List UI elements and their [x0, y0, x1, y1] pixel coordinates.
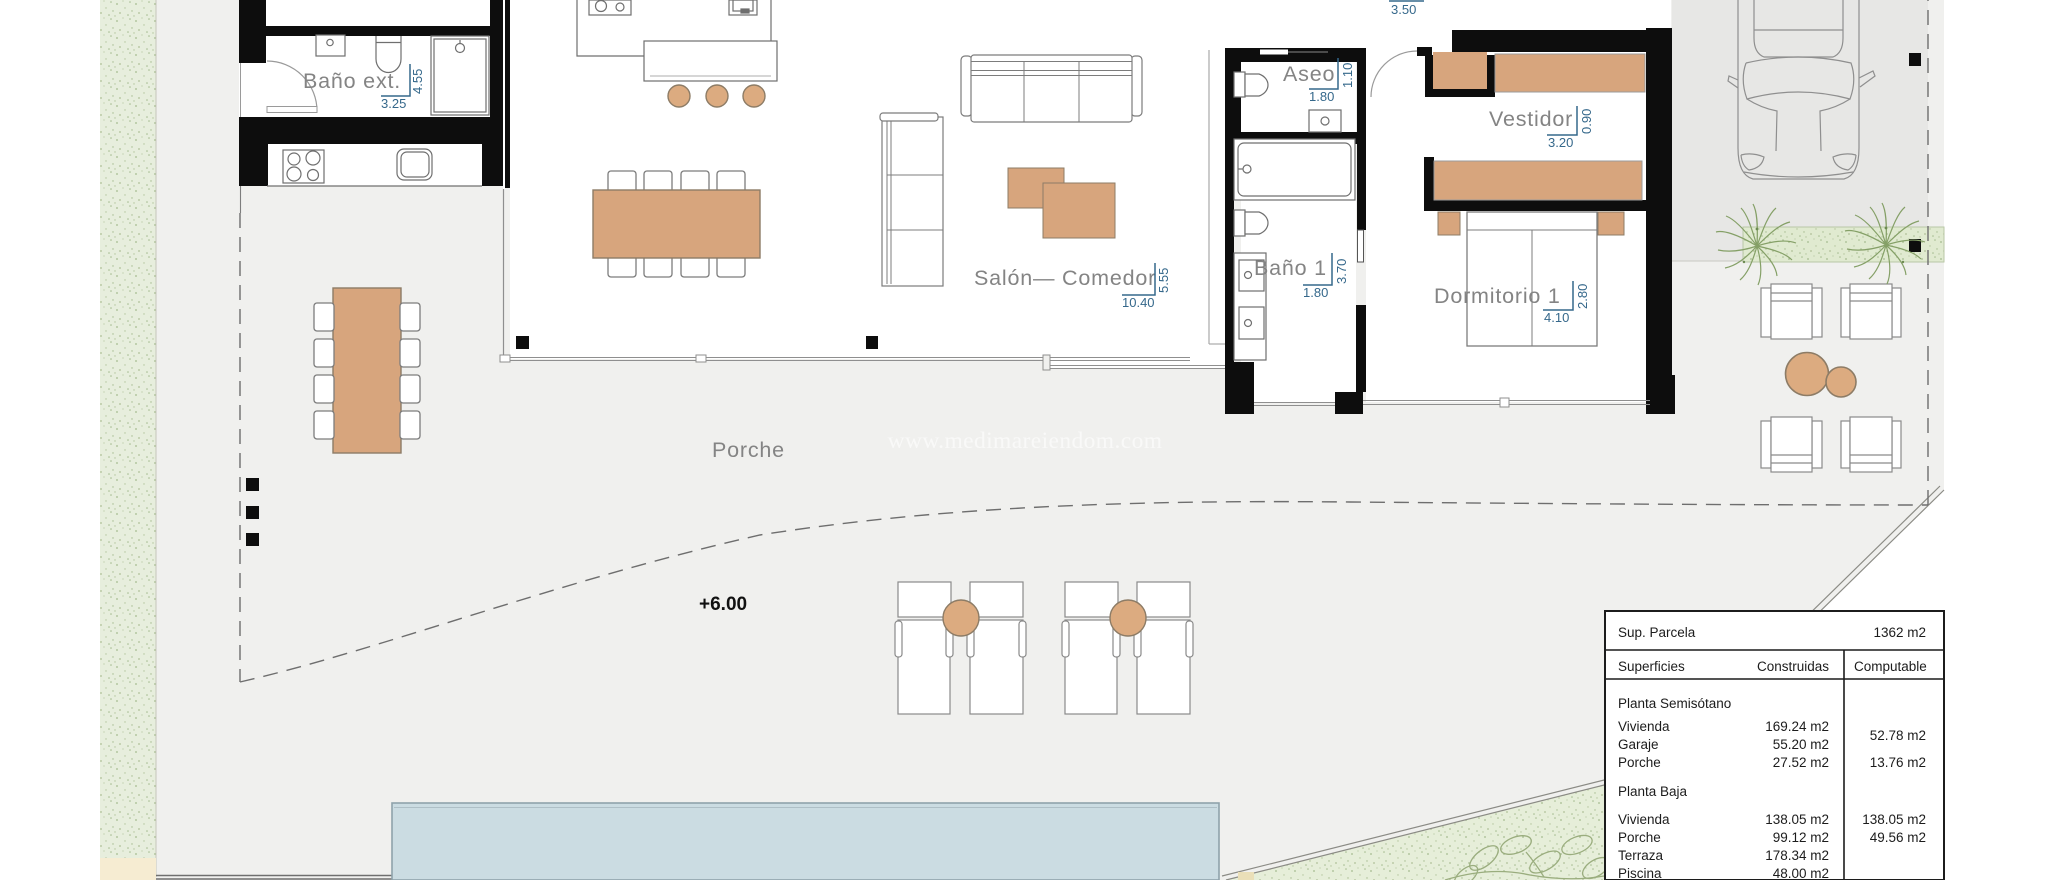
- svg-text:Vestidor: Vestidor: [1489, 107, 1573, 131]
- svg-text:1.10: 1.10: [1340, 63, 1355, 88]
- svg-text:Aseo: Aseo: [1283, 62, 1335, 86]
- svg-text:169.24 m2: 169.24 m2: [1765, 719, 1829, 734]
- svg-text:Dormitorio 1: Dormitorio 1: [1434, 284, 1561, 308]
- svg-text:Planta Semisótano: Planta Semisótano: [1618, 696, 1731, 711]
- svg-text:1362 m2: 1362 m2: [1873, 625, 1926, 640]
- svg-text:55.20 m2: 55.20 m2: [1773, 737, 1829, 752]
- svg-text:Baño ext.: Baño ext.: [303, 69, 401, 93]
- svg-text:13.76 m2: 13.76 m2: [1870, 755, 1926, 770]
- svg-text:49.56 m2: 49.56 m2: [1870, 830, 1926, 845]
- svg-text:0.90: 0.90: [1579, 109, 1594, 134]
- svg-text:+6.00: +6.00: [699, 594, 747, 615]
- svg-text:3.25: 3.25: [381, 96, 406, 111]
- svg-text:138.05 m2: 138.05 m2: [1862, 812, 1926, 827]
- svg-text:Porche: Porche: [712, 438, 785, 462]
- svg-text:Vivienda: Vivienda: [1618, 719, 1670, 734]
- svg-text:1.80: 1.80: [1309, 89, 1334, 104]
- svg-text:Porche: Porche: [1618, 755, 1661, 770]
- svg-text:Porche: Porche: [1618, 830, 1661, 845]
- svg-text:Superficies: Superficies: [1618, 659, 1685, 674]
- svg-text:Baño 1: Baño 1: [1254, 256, 1327, 280]
- svg-text:99.12 m2: 99.12 m2: [1773, 830, 1829, 845]
- svg-text:5.55: 5.55: [1156, 268, 1171, 293]
- svg-text:Construidas: Construidas: [1757, 659, 1829, 674]
- svg-text:4.55: 4.55: [410, 69, 425, 94]
- svg-text:Computable: Computable: [1854, 659, 1927, 674]
- svg-text:27.52 m2: 27.52 m2: [1773, 755, 1829, 770]
- svg-text:2.80: 2.80: [1575, 284, 1590, 309]
- svg-text:Salón— Comedor: Salón— Comedor: [974, 266, 1156, 290]
- svg-text:Vivienda: Vivienda: [1618, 812, 1670, 827]
- svg-text:Piscina: Piscina: [1618, 866, 1662, 880]
- svg-text:Terraza: Terraza: [1618, 848, 1664, 863]
- svg-text:3.50: 3.50: [1391, 2, 1416, 17]
- svg-text:Planta Baja: Planta Baja: [1618, 784, 1688, 799]
- svg-text:Sup. Parcela: Sup. Parcela: [1618, 625, 1696, 640]
- svg-text:3.20: 3.20: [1548, 135, 1573, 150]
- svg-text:1.80: 1.80: [1303, 285, 1328, 300]
- svg-text:178.34 m2: 178.34 m2: [1765, 848, 1829, 863]
- svg-text:52.78 m2: 52.78 m2: [1870, 728, 1926, 743]
- svg-text:138.05 m2: 138.05 m2: [1765, 812, 1829, 827]
- svg-text:www.medimareiendom.com: www.medimareiendom.com: [888, 428, 1163, 454]
- svg-text:3.70: 3.70: [1334, 259, 1349, 284]
- svg-text:10.40: 10.40: [1122, 295, 1155, 310]
- svg-text:48.00 m2: 48.00 m2: [1773, 866, 1829, 880]
- svg-text:4.10: 4.10: [1544, 310, 1569, 325]
- svg-text:Garaje: Garaje: [1618, 737, 1659, 752]
